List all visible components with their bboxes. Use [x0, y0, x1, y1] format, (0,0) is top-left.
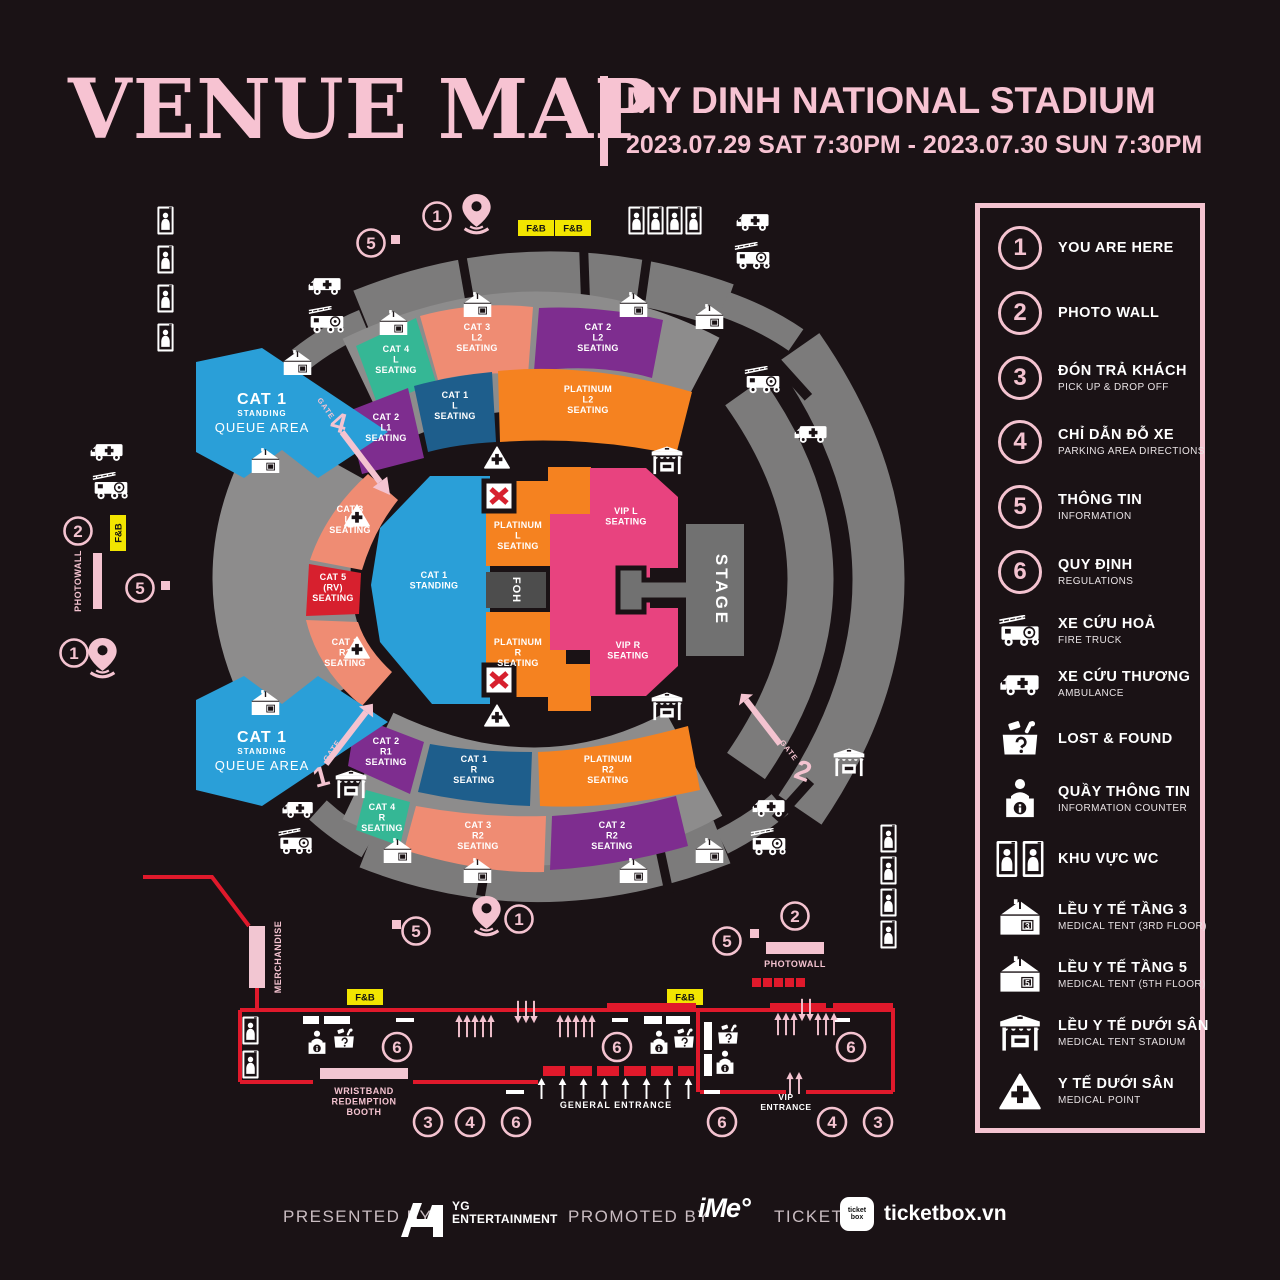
svg-text:5: 5	[722, 932, 731, 951]
lost-found-icon	[999, 720, 1041, 757]
legend-item-lost-found: LOST & FOUND	[992, 720, 1190, 757]
svg-text:F&B: F&B	[114, 523, 125, 543]
svg-text:2: 2	[790, 907, 799, 926]
svg-text:6: 6	[717, 1113, 726, 1132]
marker-1: 1	[506, 906, 533, 933]
legend-item-ambulance: XE CỨU THƯƠNGAMBULANCE	[992, 668, 1190, 699]
svg-text:4: 4	[827, 1113, 837, 1132]
svg-text:F&B: F&B	[675, 993, 695, 1004]
svg-text:F&B: F&B	[563, 224, 583, 235]
svg-text:6: 6	[392, 1038, 401, 1057]
general-entrance-dashes	[543, 1066, 694, 1076]
svg-text:MERCHANDISE: MERCHANDISE	[273, 921, 283, 994]
legend-item-pickup-dropoff: 3 ĐÓN TRẢ KHÁCHPICK UP & DROP OFF	[992, 356, 1190, 400]
medical-tent-stadium-icon	[998, 1014, 1042, 1052]
legend-item-information: 5 THÔNG TININFORMATION	[992, 485, 1190, 529]
svg-text:5: 5	[135, 579, 144, 598]
marker-2: 2	[782, 903, 809, 930]
svg-text:F&B: F&B	[526, 224, 546, 235]
medical-point-icon	[999, 1073, 1041, 1110]
wc-icon	[996, 840, 1044, 878]
wristband-bar	[320, 1068, 408, 1079]
svg-text:PHOTOWALL: PHOTOWALL	[73, 550, 83, 612]
marker-4: 4	[818, 1108, 846, 1136]
svg-text:6: 6	[612, 1038, 621, 1057]
legend-item-photo-wall: 2 PHOTO WALL	[992, 291, 1190, 335]
entrance-zone-fills	[320, 978, 893, 1079]
marker-5: 5	[127, 575, 154, 602]
svg-text:6: 6	[846, 1038, 855, 1057]
footer: PRESENTED BY YG ENTERTAINMENT PROMOTED B…	[0, 1185, 1280, 1255]
medical-tent-3-icon: 3	[998, 899, 1042, 936]
merchandise-booth: MERCHANDISE	[249, 921, 283, 994]
marker-6: 6	[383, 1033, 411, 1061]
number-2-icon: 2	[998, 291, 1042, 335]
svg-text:5: 5	[1025, 978, 1030, 988]
svg-text:3: 3	[1025, 921, 1030, 931]
legend-item-regulations: 6 QUY ĐỊNHREGULATIONS	[992, 550, 1190, 594]
marker-6: 6	[502, 1108, 530, 1136]
fire-truck-icon	[996, 615, 1044, 648]
yg-entertainment-label: YG ENTERTAINMENT	[452, 1200, 558, 1226]
marker-5: 5	[403, 918, 430, 945]
svg-text:2: 2	[73, 522, 82, 541]
svg-text:CAT 1: CAT 1	[237, 391, 287, 408]
photowall-left: PHOTOWALL	[73, 550, 102, 612]
svg-text:3: 3	[873, 1113, 882, 1132]
stadium-name: MY DINH NATIONAL STADIUM	[626, 80, 1226, 122]
marker-2: 2	[65, 518, 92, 545]
marker-3: 3	[414, 1108, 442, 1136]
legend-item-you-are-here: 1 YOU ARE HERE	[992, 226, 1190, 270]
number-6-icon: 6	[998, 550, 1042, 594]
svg-text:F&B: F&B	[355, 993, 375, 1004]
ticketbox-icon: ticket box	[840, 1197, 874, 1231]
svg-text:QUEUE AREA: QUEUE AREA	[215, 758, 310, 773]
number-4-icon: 4	[998, 420, 1042, 464]
runway	[618, 568, 690, 612]
number-1-icon: 1	[998, 226, 1042, 270]
svg-text:1: 1	[432, 207, 441, 226]
marker-6: 6	[603, 1033, 631, 1061]
marker-1: 1	[424, 203, 451, 230]
svg-text:6: 6	[511, 1113, 520, 1132]
header-divider	[600, 76, 608, 166]
ticketbox-label: ticketbox.vn	[884, 1202, 1007, 1226]
legend-panel: 1 YOU ARE HERE 2 PHOTO WALL 3 ĐÓN TRẢ KH…	[975, 203, 1205, 1133]
marker-3: 3	[864, 1108, 892, 1136]
svg-text:1: 1	[69, 644, 78, 663]
vip-queue-dashes	[752, 978, 805, 987]
svg-text:PHOTOWALL: PHOTOWALL	[764, 959, 826, 969]
marker-6: 6	[708, 1108, 736, 1136]
svg-text:QUEUE AREA: QUEUE AREA	[215, 420, 310, 435]
yg-logo	[399, 1197, 445, 1239]
information-counter-icon	[1002, 778, 1038, 819]
number-5-icon: 5	[998, 485, 1042, 529]
svg-text:5: 5	[411, 922, 420, 941]
general-entrance-arrows	[538, 1078, 693, 1099]
svg-text:VIPENTRANCE: VIPENTRANCE	[760, 1092, 811, 1112]
svg-text:3: 3	[423, 1113, 432, 1132]
legend-item-fire-truck: XE CỨU HOẢFIRE TRUCK	[992, 615, 1190, 648]
svg-text:STANDING: STANDING	[237, 747, 286, 756]
legend-item-information-counter: QUẦY THÔNG TININFORMATION COUNTER	[992, 778, 1190, 819]
legend-item-wc: KHU VỰC WC	[992, 840, 1190, 878]
svg-text:5: 5	[366, 234, 375, 253]
ime-logo: iMe°	[698, 1193, 750, 1224]
svg-text:WRISTBANDREDEMPTIONBOOTH: WRISTBANDREDEMPTIONBOOTH	[331, 1086, 396, 1117]
svg-text:CAT 1: CAT 1	[237, 729, 287, 746]
marker-4: 4	[456, 1108, 484, 1136]
svg-text:GENERAL ENTRANCE: GENERAL ENTRANCE	[560, 1100, 672, 1110]
marker-6: 6	[837, 1033, 865, 1061]
ambulance-icon	[997, 668, 1043, 699]
entrance-zone-contents	[242, 999, 850, 1099]
promoted-by-label: PROMOTED BY	[568, 1207, 710, 1227]
legend-item-parking: 4 CHỈ DẪN ĐỖ XEPARKING AREA DIRECTIONS	[992, 420, 1190, 464]
event-datetime: 2023.07.29 SAT 7:30PM - 2023.07.30 SUN 7…	[626, 131, 1226, 160]
ticket-label: TICKET	[774, 1207, 843, 1227]
header: VENUE MAP MY DINH NATIONAL STADIUM 2023.…	[0, 0, 1280, 185]
legend-item-medical-tent-stadium: LỀU Y TẾ DƯỚI SÂNMEDICAL TENT STADIUM	[992, 1014, 1190, 1052]
number-3-icon: 3	[998, 356, 1042, 400]
legend-item-medical-point: Y TẾ DƯỚI SÂNMEDICAL POINT	[992, 1073, 1190, 1110]
svg-text:4: 4	[465, 1113, 475, 1132]
marker-5: 5	[714, 928, 741, 955]
legend-item-medical-tent-5: 5 LỀU Y TẾ TẦNG 5MEDICAL TENT (5TH FLOOR…	[992, 956, 1190, 993]
medical-tent-5-icon: 5	[998, 956, 1042, 993]
marker-1: 1	[61, 640, 88, 667]
page-title: VENUE MAP	[68, 62, 588, 158]
marker-5: 5	[358, 230, 385, 257]
legend-item-medical-tent-3: 3 LỀU Y TẾ TẦNG 3MEDICAL TENT (3RD FLOOR…	[992, 899, 1190, 936]
photowall-bottom: PHOTOWALL	[764, 942, 826, 969]
stage-label: STAGE	[712, 554, 731, 626]
foh-label: FOH	[510, 577, 522, 603]
svg-text:STANDING: STANDING	[237, 409, 286, 418]
svg-text:1: 1	[514, 910, 523, 929]
